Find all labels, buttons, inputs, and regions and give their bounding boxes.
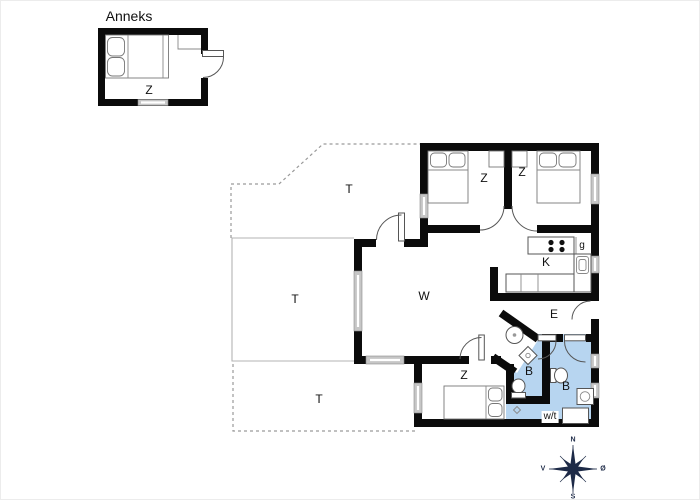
bathroom2-door-leaf [565,335,586,341]
terrace-south-label: T [315,393,322,405]
compass-west-label: V [541,466,546,473]
terrace-north-outline [231,144,420,238]
terrace-south-outline [233,364,415,431]
bathroom-large-label: B [562,380,570,392]
bedroom1-door-arc [480,206,504,230]
bedroom-top-left-label: Z [480,172,487,184]
bathroom1-door-leaf [538,335,556,341]
entry-door-arc [572,301,591,320]
annex-pillow [108,38,125,57]
kitchen-label: K [542,256,550,268]
living-room-label: W [418,290,429,302]
floor-plan-drawing [1,1,700,500]
kitchen-counter [506,274,574,292]
stove-burner [548,240,553,245]
terrace-outlines [231,144,420,431]
toilet-1-tank [512,393,526,399]
utility-room-label: w/t [542,411,559,423]
bedroom-bottom-door-arc [460,338,482,360]
shower-tray-2 [577,389,594,405]
washbasin-drain [513,333,517,337]
annex-title: Anneks [106,9,153,23]
compass-north-label: N [570,437,575,444]
bedroom-bottom-door-leaf [479,335,485,360]
bedroom-bottom-pillow [489,388,503,401]
bedroom-bottom-pillow [489,404,503,417]
stove-burner [559,247,564,252]
entry-label: E [550,308,558,320]
annex-pillow [108,58,125,77]
annex-bedroom-label: Z [145,84,152,96]
bedroom1-pillow [431,153,447,167]
compass-south-label: S [571,494,576,500]
annex-door-leaf [203,51,224,57]
compass-east-label: Ø [600,466,605,473]
stove-burner [559,240,564,245]
stove-burner [548,247,553,252]
floor-plan: Anneks Z Z Z K g W E B B Z w/t T T T N S… [0,0,700,500]
bedroom2-door-arc [512,206,537,231]
annex-door-arc [203,57,224,78]
terrace-west-label: T [291,293,298,305]
bedroom2-pillow [559,153,576,167]
terrace-north-label: T [345,183,352,195]
compass-rose [549,445,597,493]
pantry-label: g [579,241,585,251]
washing-machine [563,408,589,424]
terrace-door-leaf [399,213,405,241]
bathroom-small-label: B [525,365,533,377]
entry-door-opening [591,301,599,319]
bedroom-top-right-label: Z [518,166,525,178]
terrace-door-arc [377,215,402,240]
bedroom1-closet [489,151,504,167]
toilet-1-bowl [512,379,525,393]
bottom-bedroom-interior [444,386,504,419]
bedroom-bottom-label: Z [460,369,467,381]
annex-closet [178,35,201,49]
bedroom2-pillow [540,153,557,167]
bedroom1-pillow [449,153,465,167]
